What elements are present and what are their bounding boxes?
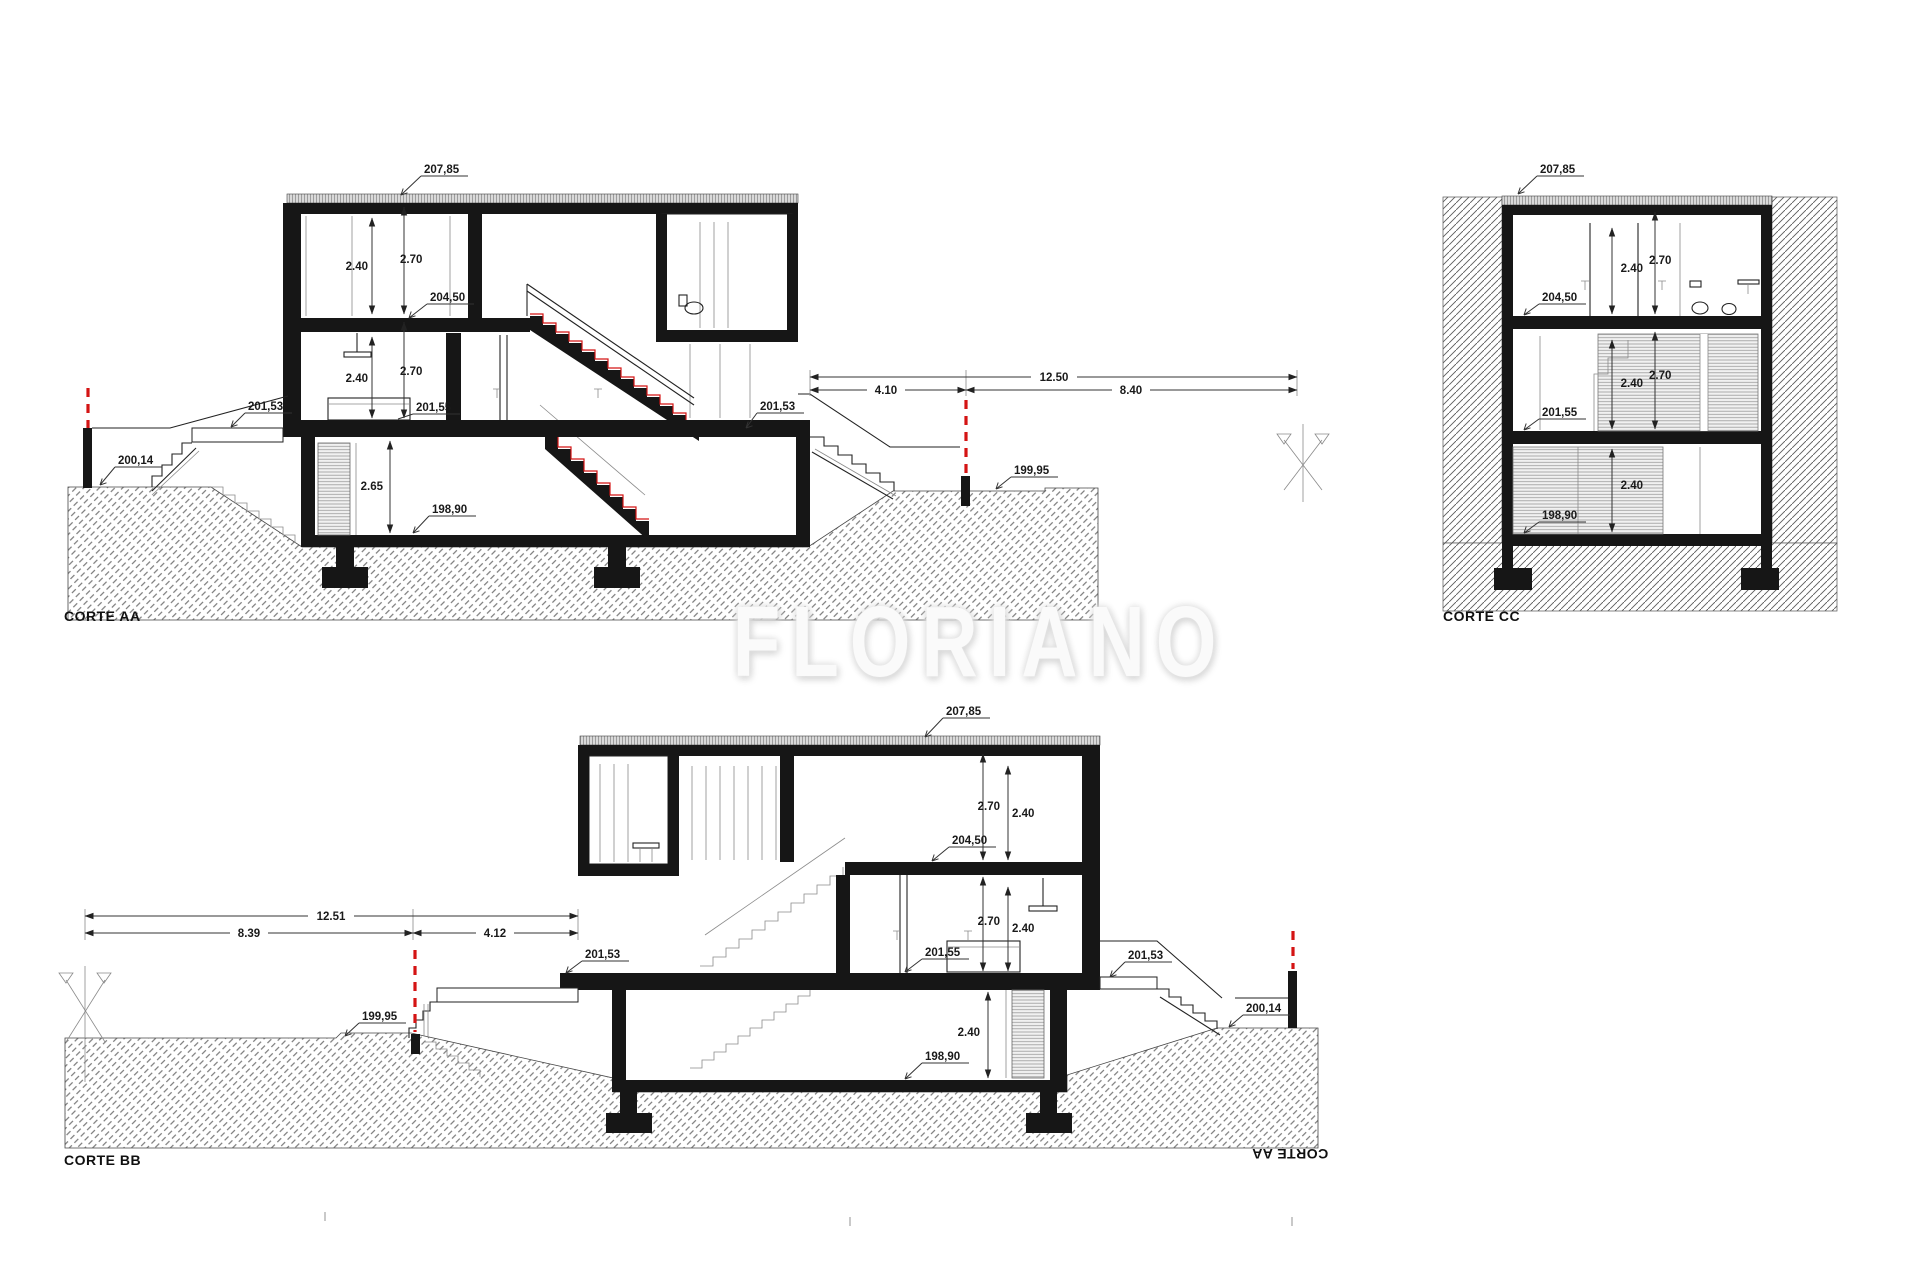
height-label: 2.70 <box>1649 255 1671 267</box>
level-label-terrace-left: 201,53 <box>566 949 629 973</box>
basement-floor-slab <box>612 1080 1067 1092</box>
height-label: 2.40 <box>1012 808 1034 820</box>
footing-pad <box>1741 568 1779 590</box>
slab-204-50 <box>283 318 530 332</box>
footing-column <box>608 547 626 567</box>
section-title-bb: CORTE BB <box>64 1152 141 1168</box>
svg-text:4.12: 4.12 <box>484 928 506 940</box>
partition-upper <box>468 214 482 318</box>
boundary-marker-left <box>83 388 92 488</box>
height-label: 2.40 <box>1621 378 1643 390</box>
footing-column <box>1502 546 1513 568</box>
height-label: 2.40 <box>1012 923 1034 935</box>
section-title-aa: CORTE AA <box>64 608 141 624</box>
svg-text:207,85: 207,85 <box>946 706 982 718</box>
basement-wall-left <box>612 990 626 1080</box>
roof-finish-strip <box>287 194 798 203</box>
height-label: 2.70 <box>978 916 1000 928</box>
height-label: 2.70 <box>400 366 422 378</box>
wall-left <box>1502 205 1513 546</box>
exterior-stair-right <box>798 394 960 499</box>
svg-text:200,14: 200,14 <box>118 455 154 467</box>
level-label-terrace-left: 201,53 <box>231 401 292 427</box>
section-corte-aa: 2.40 2.70 2.40 2.70 2.65 207,85 204,50 2… <box>64 164 1329 624</box>
level-label-roof: 207,85 <box>1518 164 1584 194</box>
drawing-sheet: 2.40 2.70 2.40 2.70 2.65 207,85 204,50 2… <box>0 0 1920 1280</box>
svg-text:198,90: 198,90 <box>1542 510 1577 522</box>
door-swing <box>594 389 602 398</box>
footing-column <box>336 547 354 567</box>
level-label-ground-left: 199,95 <box>345 1011 406 1036</box>
level-label-basement: 198,90 <box>905 1051 969 1079</box>
roof-slab <box>1502 205 1772 215</box>
registration-ticks <box>324 1212 1293 1226</box>
svg-text:207,85: 207,85 <box>424 164 460 176</box>
svg-text:201,55: 201,55 <box>416 402 452 414</box>
basement-wall-right <box>796 437 810 535</box>
svg-text:8.40: 8.40 <box>1120 385 1142 397</box>
svg-text:4.10: 4.10 <box>875 385 897 397</box>
basement-wall-left <box>301 437 315 535</box>
svg-text:198,90: 198,90 <box>925 1051 960 1063</box>
height-label: 2.40 <box>958 1027 980 1039</box>
footing-pad <box>1026 1113 1072 1133</box>
basement-louver <box>318 443 350 535</box>
level-label-basement: 198,90 <box>413 504 476 533</box>
slab-198-90 <box>1502 534 1772 546</box>
roof-finish-strip <box>1502 196 1772 205</box>
height-label: 2.70 <box>978 801 1000 813</box>
door-swing <box>1658 281 1666 290</box>
svg-text:204,50: 204,50 <box>430 292 465 304</box>
svg-text:201,53: 201,53 <box>760 401 795 413</box>
footing-pad <box>606 1113 652 1133</box>
svg-text:201,55: 201,55 <box>1542 407 1578 419</box>
level-label-main: 201,55 <box>905 947 969 972</box>
partition-upper <box>780 756 794 862</box>
door-swing <box>1581 281 1589 290</box>
svg-text:201,53: 201,53 <box>248 401 283 413</box>
roof-finish-strip <box>580 736 1100 745</box>
level-label-main: 201,55 <box>1524 407 1586 430</box>
height-label: 2.40 <box>1621 480 1643 492</box>
toilet-icon <box>1690 281 1708 314</box>
partition-main <box>836 875 850 973</box>
section-corte-bb: 2.70 2.40 2.70 2.40 2.40 207,85 204,50 2… <box>59 706 1328 1168</box>
level-label-terrace-right: 201,53 <box>1110 950 1172 977</box>
ground-hatch <box>68 487 1098 620</box>
kitchen-counter <box>328 333 410 420</box>
bidet-icon <box>1722 304 1736 315</box>
slab-204-50 <box>1513 316 1761 329</box>
footing-pad <box>1494 568 1532 590</box>
svg-text:199,95: 199,95 <box>1014 465 1050 477</box>
footing-column <box>1761 546 1772 568</box>
height-label: 2.40 <box>1621 263 1643 275</box>
height-label: 2.40 <box>346 373 368 385</box>
terrace-left <box>192 428 283 442</box>
bathroom-box <box>656 214 798 342</box>
svg-text:201,53: 201,53 <box>585 949 620 961</box>
earth-right <box>1772 197 1837 543</box>
level-label-ground-right: 199,95 <box>996 465 1058 489</box>
roof-slab <box>283 203 798 214</box>
earth-left <box>1443 197 1502 543</box>
height-label: 2.70 <box>400 254 422 266</box>
terrace-right <box>1100 977 1157 989</box>
footing-column <box>1040 1092 1057 1113</box>
svg-text:198,90: 198,90 <box>432 504 467 516</box>
height-label: 2.70 <box>1649 370 1671 382</box>
footing-pad <box>594 567 640 588</box>
basement-floor-slab <box>301 535 810 547</box>
stair-lower-flight <box>690 988 810 1068</box>
section-corte-cc: 2.40 2.70 2.40 2.70 2.40 207,85 204,50 <box>1443 164 1837 624</box>
tree-symbol <box>1277 424 1329 502</box>
slab-204-50 <box>845 862 1100 875</box>
slab-201-55 <box>283 420 810 437</box>
exterior-stair-left <box>409 1002 437 1038</box>
height-label: 2.40 <box>346 261 368 273</box>
svg-text:12.51: 12.51 <box>317 911 346 923</box>
level-label-roof: 207,85 <box>925 706 990 737</box>
boundary-marker-right <box>961 400 970 506</box>
washbasin-icon <box>1738 280 1759 294</box>
footing-column <box>620 1092 637 1113</box>
section-title-aa-mirrored: CORTE AA <box>1252 1146 1329 1162</box>
level-label-ground-left: 200,14 <box>100 455 162 485</box>
kitchen-counter <box>947 878 1057 972</box>
svg-text:204,50: 204,50 <box>1542 292 1577 304</box>
door-swing <box>964 931 972 940</box>
svg-text:12.50: 12.50 <box>1040 372 1069 384</box>
basement-wall-right <box>1050 990 1067 1080</box>
bathroom-box <box>578 745 679 876</box>
level-label-ground-right: 200,14 <box>1229 1003 1290 1027</box>
dimension-lines: 12.50 4.10 8.40 <box>810 370 1297 397</box>
wall-right <box>1761 205 1772 546</box>
svg-text:200,14: 200,14 <box>1246 1003 1282 1015</box>
sections-drawing: 2.40 2.70 2.40 2.70 2.65 207,85 204,50 2… <box>0 0 1920 1280</box>
level-label-roof: 207,85 <box>401 164 468 195</box>
stair-upper-flight <box>700 838 845 966</box>
basement-louver <box>1012 990 1044 1078</box>
level-label-upper: 204,50 <box>1524 292 1586 315</box>
svg-text:8.39: 8.39 <box>238 928 260 940</box>
slab-201-55 <box>1513 431 1761 444</box>
height-label: 2.65 <box>361 481 384 493</box>
svg-text:204,50: 204,50 <box>952 835 987 847</box>
svg-text:207,85: 207,85 <box>1540 164 1576 176</box>
level-label-upper: 204,50 <box>409 292 474 318</box>
boundary-marker-left <box>411 950 420 1054</box>
terrace-left <box>437 988 578 1002</box>
dimension-lines: 12.51 8.39 4.12 <box>85 909 578 940</box>
footing-pad <box>322 567 368 588</box>
wall-right <box>1082 745 1100 973</box>
roof-slab <box>578 745 1098 756</box>
slab-201-55 <box>560 973 1100 990</box>
svg-text:201,55: 201,55 <box>925 947 961 959</box>
section-title-cc: CORTE CC <box>1443 608 1520 624</box>
boundary-marker-right <box>1288 931 1297 1028</box>
svg-text:201,53: 201,53 <box>1128 950 1163 962</box>
level-label-upper: 204,50 <box>932 835 996 861</box>
svg-text:199,95: 199,95 <box>362 1011 398 1023</box>
